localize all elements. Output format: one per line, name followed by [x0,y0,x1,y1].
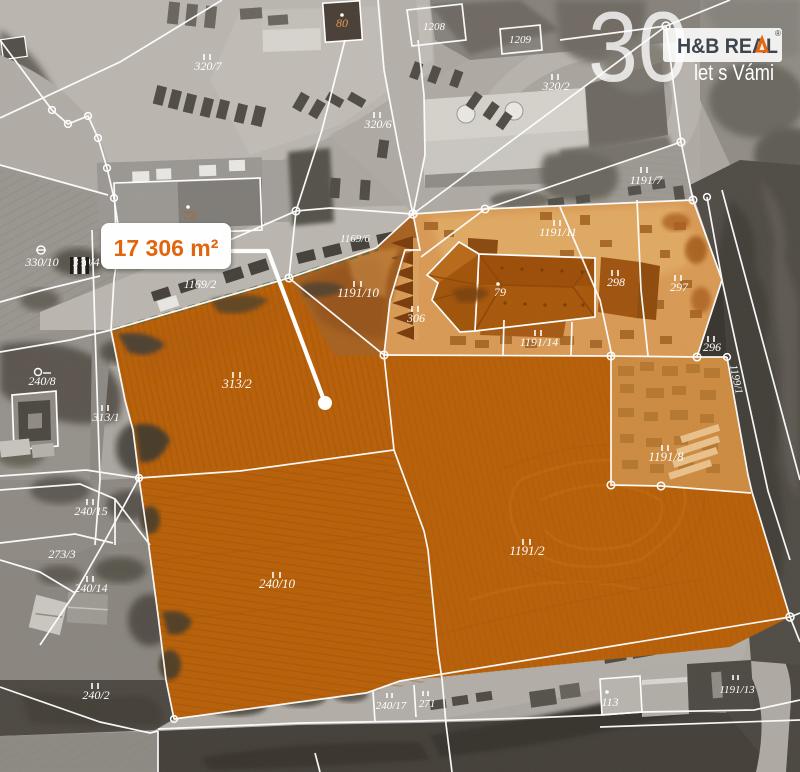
svg-text:®: ® [775,29,781,38]
svg-text:let s Vámi: let s Vámi [694,60,774,85]
